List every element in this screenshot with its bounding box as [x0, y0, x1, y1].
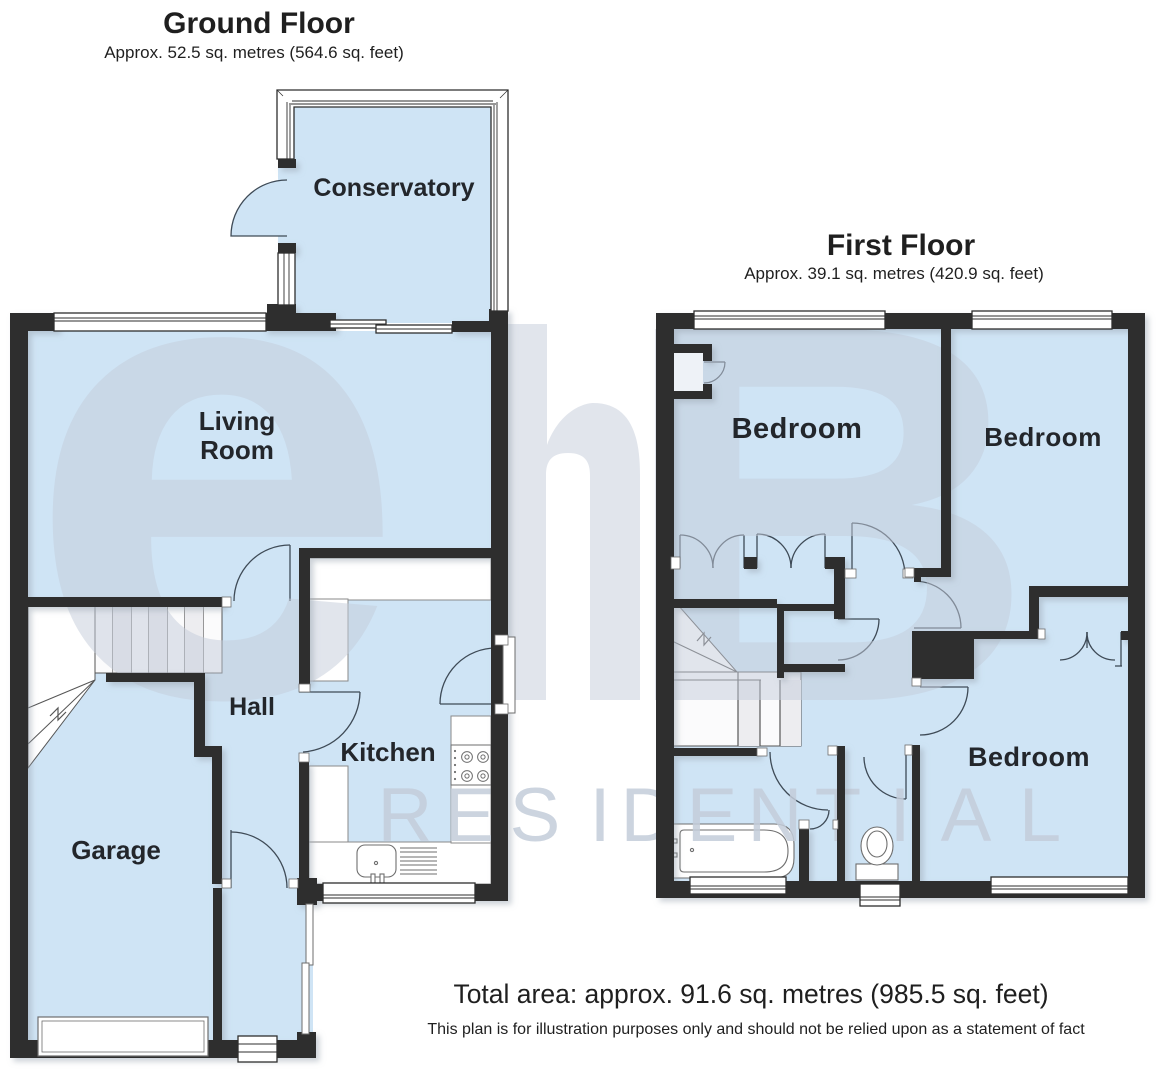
svg-text:E: E: [687, 773, 738, 858]
svg-text:Approx. 39.1 sq. metres (420.9: Approx. 39.1 sq. metres (420.9 sq. feet): [744, 264, 1044, 283]
svg-text:Conservatory: Conservatory: [313, 174, 474, 202]
svg-text:This plan is for illustration: This plan is for illustration purposes o…: [427, 1021, 1085, 1038]
svg-text:Total area: approx. 91.6 sq. m: Total area: approx. 91.6 sq. metres (985…: [453, 979, 1048, 1009]
svg-text:Bedroom: Bedroom: [968, 742, 1090, 772]
svg-text:Bedroom: Bedroom: [732, 413, 863, 445]
svg-text:Hall: Hall: [229, 693, 275, 721]
svg-text:Kitchen: Kitchen: [340, 737, 435, 767]
svg-text:Approx. 52.5 sq. metres (564.6: Approx. 52.5 sq. metres (564.6 sq. feet): [104, 43, 404, 62]
svg-text:Living: Living: [199, 406, 276, 436]
svg-text:L: L: [1019, 773, 1061, 858]
svg-text:Bedroom: Bedroom: [984, 422, 1102, 452]
svg-text:S: S: [510, 773, 561, 858]
svg-text:I: I: [589, 773, 610, 858]
svg-text:A: A: [941, 773, 992, 858]
svg-text:E: E: [445, 773, 496, 858]
svg-text:B: B: [616, 213, 1038, 815]
svg-text:I: I: [889, 773, 910, 858]
svg-text:Ground Floor: Ground Floor: [163, 7, 355, 40]
svg-text:First Floor: First Floor: [827, 229, 976, 262]
svg-text:Room: Room: [200, 435, 274, 465]
svg-text:R: R: [378, 773, 433, 858]
svg-text:Garage: Garage: [71, 835, 161, 865]
svg-text:N: N: [748, 773, 803, 858]
